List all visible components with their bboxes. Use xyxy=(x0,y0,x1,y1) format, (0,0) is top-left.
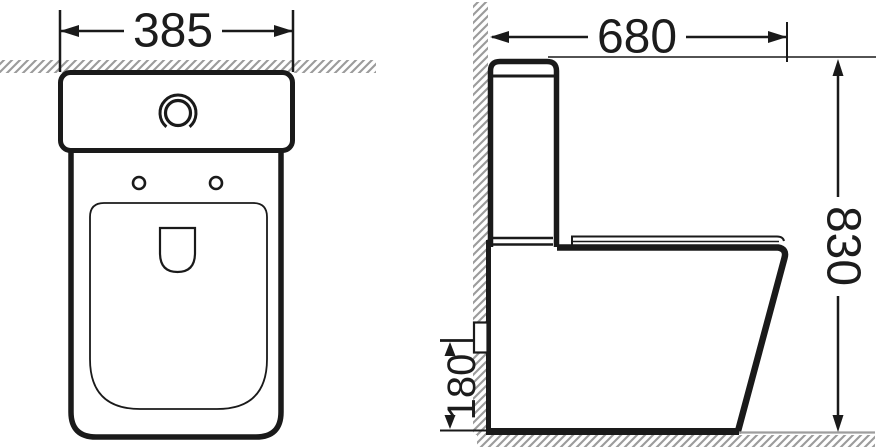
side-view: 680 180 xyxy=(440,2,876,447)
side-height-value: 830 xyxy=(817,206,870,286)
side-depth-value: 680 xyxy=(597,11,677,64)
water-inlet-fitting xyxy=(474,323,488,353)
inlet-height-value: 180 xyxy=(440,354,484,421)
side-height-dimension: 830 xyxy=(817,59,870,432)
inlet-height-dimension: 180 xyxy=(440,341,487,431)
drain-outline xyxy=(160,228,195,272)
front-view: 385 xyxy=(0,5,376,438)
arrow-up-icon xyxy=(833,59,844,76)
bowl-rim-and-front-slant xyxy=(557,248,785,434)
drawing-svg: 385 680 xyxy=(0,0,880,448)
toilet-body-front xyxy=(71,150,281,437)
floor-hatch xyxy=(477,435,875,447)
arrow-right-icon xyxy=(274,25,293,37)
arrow-left-icon xyxy=(60,25,79,37)
hinge-hole-left xyxy=(133,177,145,189)
hinge-hole-right xyxy=(210,177,222,189)
cistern-tank-side xyxy=(491,62,557,248)
arrow-right-icon xyxy=(768,31,787,43)
arrow-down-icon xyxy=(833,415,844,432)
arrow-left-icon xyxy=(490,31,509,43)
toilet-dimension-drawing: 385 680 xyxy=(0,0,880,448)
front-width-value: 385 xyxy=(133,5,213,58)
cistern-tank-front xyxy=(61,73,293,151)
side-depth-dimension: 680 xyxy=(490,11,787,64)
